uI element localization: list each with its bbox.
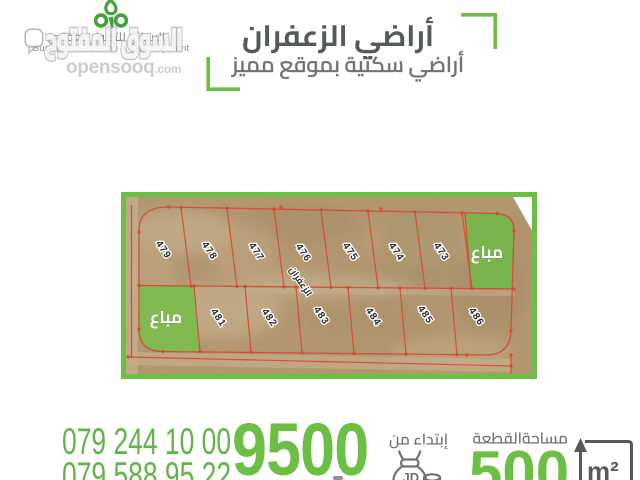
svg-text:m²: m²	[587, 456, 619, 480]
svg-text:JD: JD	[403, 470, 420, 480]
